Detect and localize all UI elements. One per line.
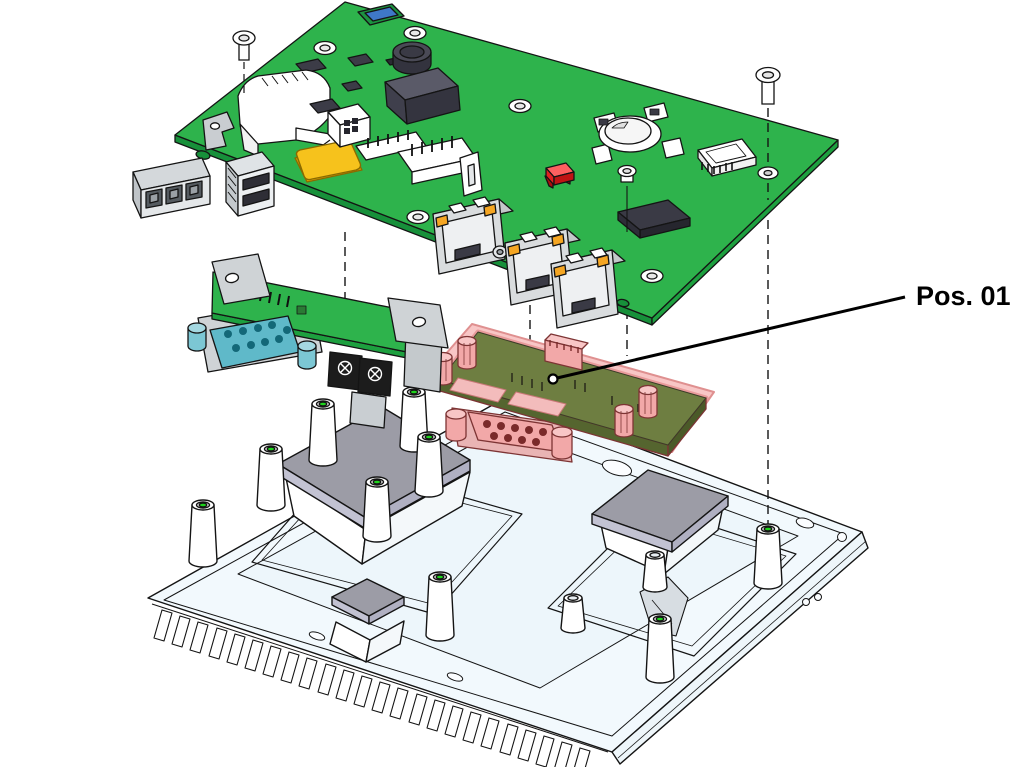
callout-label: Pos. 01 bbox=[916, 281, 1011, 311]
usb-stack bbox=[226, 152, 274, 216]
cylinder-component bbox=[393, 42, 431, 74]
board-washer bbox=[758, 167, 778, 179]
exploded-assembly-diagram: Pos. 01 bbox=[0, 0, 1024, 767]
callout-anchor-dot bbox=[549, 375, 558, 384]
status-red-component bbox=[545, 163, 574, 188]
